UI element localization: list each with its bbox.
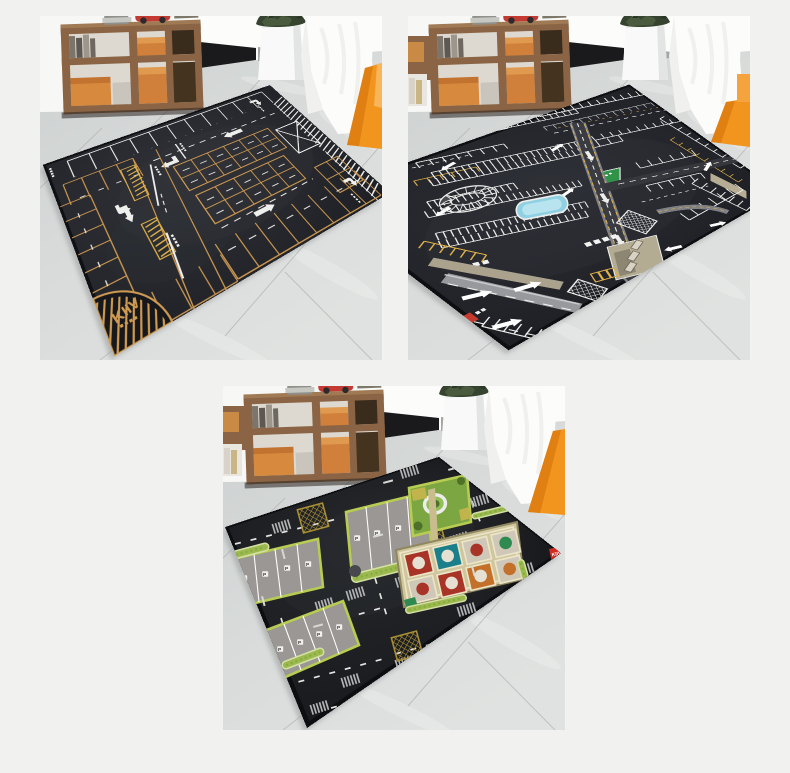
svg-text:P: P [242, 576, 246, 582]
svg-text:KIIV: KIIV [551, 550, 562, 558]
